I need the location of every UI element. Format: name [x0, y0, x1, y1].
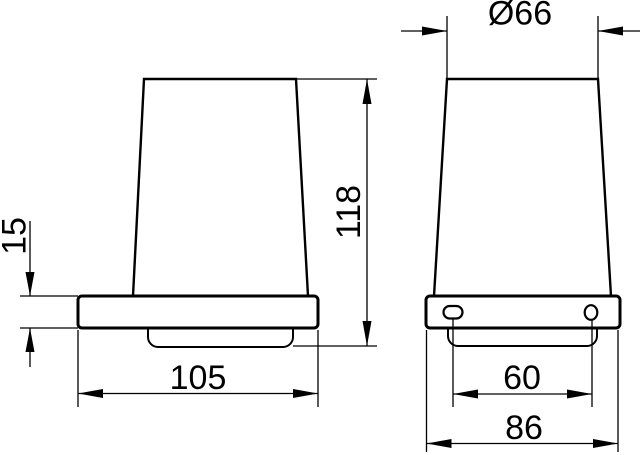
arrowhead-right: [593, 439, 618, 448]
dim-label-hole-spacing: 60: [503, 359, 541, 397]
arrowhead-down: [363, 321, 372, 346]
front-view: [426, 79, 620, 346]
arrowhead-left: [78, 389, 103, 398]
side-wall-plate: [78, 296, 318, 328]
arrowhead-left: [427, 439, 452, 448]
drawing-canvas: 15 118 105: [0, 0, 640, 455]
dim-label-plate-width: 86: [505, 409, 543, 447]
dim-label-total-height: 118: [330, 185, 368, 239]
dim-label-plate-depth: 105: [170, 359, 227, 397]
front-cup-body: [434, 79, 611, 296]
side-view: [78, 79, 318, 347]
arrowhead-right: [567, 390, 592, 399]
arrowhead-left: [453, 390, 478, 399]
arrowhead-right: [422, 27, 447, 36]
dim-label-plate-thickness: 15: [0, 217, 34, 255]
arrowhead-up: [363, 79, 372, 104]
arrowhead-up: [26, 328, 35, 352]
side-cup-body: [133, 79, 308, 296]
mounting-slot: [444, 306, 463, 319]
dim-label-top-diameter: Ø66: [488, 0, 552, 33]
arrowhead-down: [26, 272, 35, 296]
dimension-plate-thickness: 15: [0, 217, 78, 367]
technical-drawing: 15 118 105: [0, 0, 640, 455]
dimension-top-diameter: Ø66: [401, 0, 640, 78]
mounting-hole: [585, 305, 598, 320]
arrowhead-left: [598, 27, 623, 36]
arrowhead-right: [293, 389, 318, 398]
